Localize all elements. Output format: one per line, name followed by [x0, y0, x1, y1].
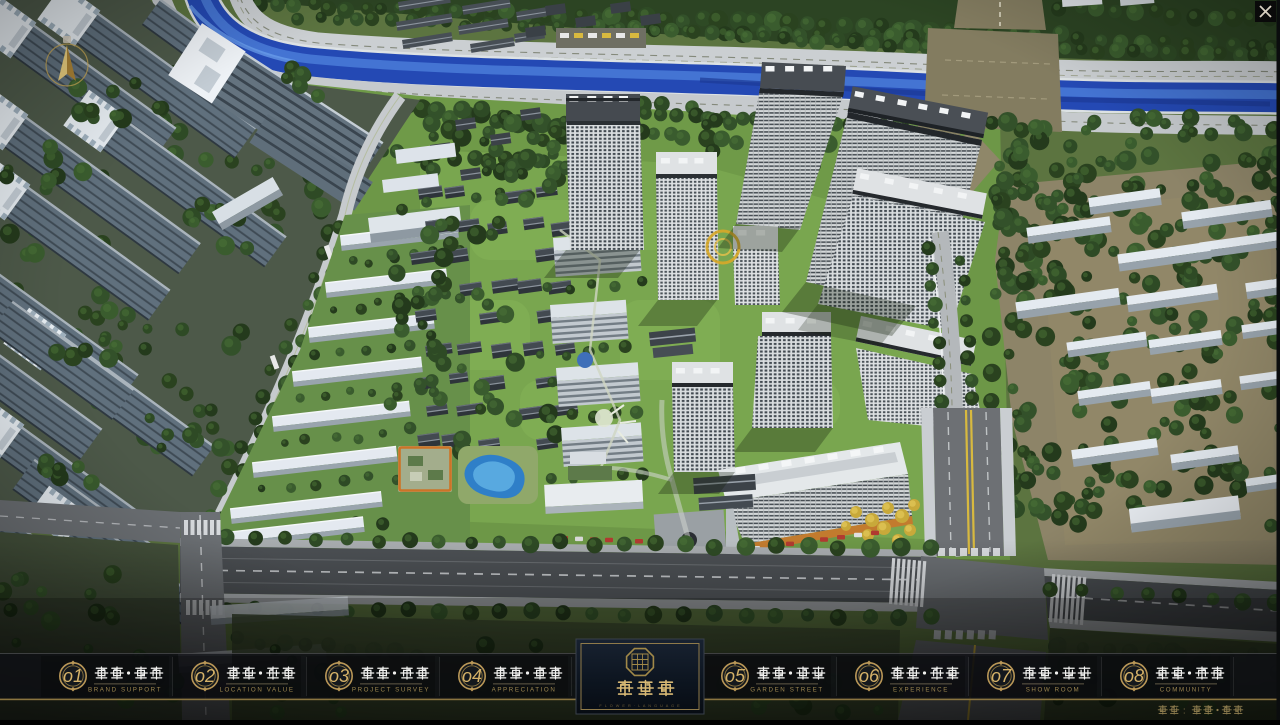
svg-text:o5: o5 — [725, 666, 746, 686]
svg-text:SHOW ROOM: SHOW ROOM — [1026, 687, 1081, 694]
svg-text::: : — [1183, 706, 1186, 716]
svg-text:PROJECT SURVEY: PROJECT SURVEY — [352, 687, 430, 694]
svg-text:COMMUNITY: COMMUNITY — [1160, 687, 1213, 694]
svg-text:APPRECIATION: APPRECIATION — [492, 687, 557, 694]
svg-text:o1: o1 — [63, 666, 83, 686]
svg-text:o4: o4 — [462, 666, 482, 686]
svg-text:F L O W E R · L A N G U A G E: F L O W E R · L A N G U A G E — [599, 704, 680, 708]
svg-text:EXPERIENCE: EXPERIENCE — [893, 687, 949, 694]
svg-text:o8: o8 — [1124, 666, 1144, 686]
svg-text:o3: o3 — [329, 666, 349, 686]
svg-text:GARDEN STREET: GARDEN STREET — [750, 687, 823, 694]
svg-text:LOCATION VALUE: LOCATION VALUE — [219, 687, 294, 694]
svg-text:o2: o2 — [195, 666, 215, 686]
svg-text:o6: o6 — [859, 666, 880, 686]
svg-text:o7: o7 — [991, 666, 1012, 686]
svg-text:BRAND SUPPORT: BRAND SUPPORT — [88, 687, 162, 694]
